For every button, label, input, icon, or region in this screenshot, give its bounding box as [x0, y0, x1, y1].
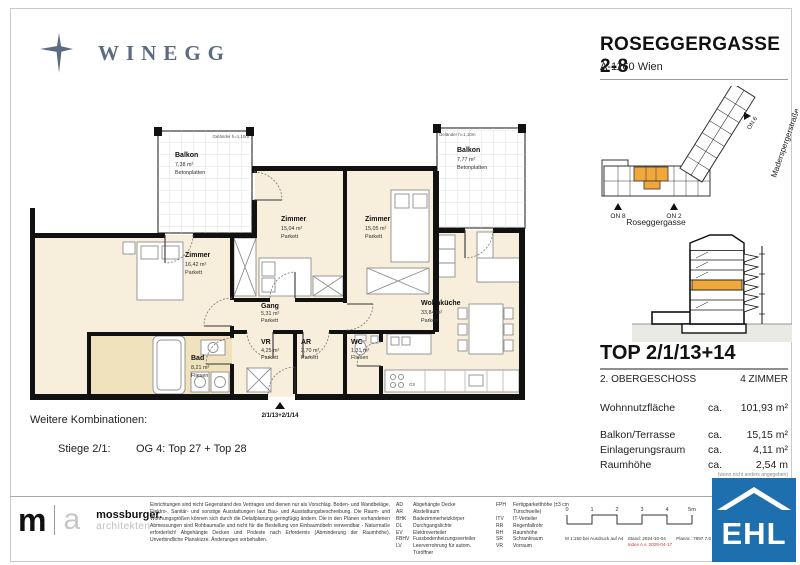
unit-title: TOP 2/1/13+14	[600, 342, 788, 370]
svg-text:4: 4	[665, 507, 668, 513]
room-label-balkon-right: Balkon	[457, 147, 480, 154]
svg-text:2: 2	[615, 507, 618, 513]
plan-meta: M 1:150 bei Ausdruck auf A4 Stand: 2024-…	[565, 536, 711, 548]
address-rule	[600, 79, 788, 80]
unit-room-count: 4 ZIMMER	[740, 374, 788, 385]
architect-logo-a: a	[63, 505, 80, 535]
room-label-zimmer-2: Zimmer	[281, 216, 307, 223]
svg-text:Fliesen: Fliesen	[191, 373, 208, 379]
svg-text:Parkett: Parkett	[185, 270, 203, 276]
site-on6-label: ON 6	[747, 115, 760, 131]
architect-logo-m: m	[18, 504, 46, 536]
svg-text:3: 3	[640, 507, 643, 513]
ehl-wordmark: EHL	[722, 516, 787, 551]
svg-text:Parkett: Parkett	[301, 355, 319, 361]
room-label-wohnkueche: Wohnküche	[421, 300, 461, 307]
svg-text:33,84 m²: 33,84 m²	[421, 310, 442, 316]
svg-text:0: 0	[565, 507, 568, 513]
svg-text:7,38 m²: 7,38 m²	[175, 162, 193, 168]
svg-text:1: 1	[590, 507, 593, 513]
room-label-gang: Gang	[261, 303, 279, 310]
balcony-left	[158, 131, 252, 233]
section-balcony-slabs	[744, 254, 758, 312]
combinations-stiege: Stiege 2/1:	[58, 443, 136, 455]
room-label-bad: Bad	[191, 355, 204, 362]
svg-text:Parkett: Parkett	[261, 355, 279, 361]
metric-row: Wohnnutzfläche ca. 101,93 m²	[600, 402, 788, 414]
room-label-ar: AR	[301, 339, 311, 346]
project-address: A-1160 Wien	[600, 61, 663, 73]
brand-wordmark: WINEGG	[98, 41, 231, 66]
room-label-vr: VR	[261, 339, 271, 346]
svg-text:4,25 m²: 4,25 m²	[261, 348, 279, 354]
svg-text:15,04 m²: 15,04 m²	[281, 226, 302, 232]
svg-text:16,42 m²: 16,42 m²	[185, 262, 206, 268]
scale-bar: 0 1 2 3 4 5m	[565, 503, 715, 538]
metric-row: Balkon/Terrasse ca. 15,15 m²	[600, 429, 788, 441]
metric-row: Einlagerungsraum ca. 4,11 m²	[600, 444, 788, 456]
svg-text:2,70 m²: 2,70 m²	[301, 348, 319, 354]
room-label-wc: WC	[351, 339, 363, 346]
svg-text:Betonplatten: Betonplatten	[457, 165, 487, 171]
scale-note: M 1:150 bei Ausdruck auf A4	[565, 536, 623, 548]
metric-row: Raumhöhe ca. 2,54 m	[600, 459, 788, 471]
entry-marker: 2/1/13+2/1/14	[262, 402, 300, 419]
building-section	[632, 232, 792, 349]
combinations: Weitere Kombinationen: Stiege 2/1: OG 4:…	[30, 414, 247, 455]
entry-label: 2/1/13+2/1/14	[262, 413, 300, 419]
abbreviation-legend-col1: ADAbgehängte Decke ARAbstellraum BHKBade…	[396, 502, 490, 557]
site-plan: ON 8 ON 2 ON 6 Maderspergerstraße Rosegg…	[598, 86, 798, 233]
room-label-zimmer-3: Zimmer	[365, 216, 391, 223]
ehl-logo: EHL	[712, 478, 796, 562]
plan-index: Index A v. 2025-04-17	[628, 542, 672, 548]
site-building-outline	[602, 86, 755, 196]
footer-divider	[10, 496, 790, 497]
plan-sheet: { "header": { "brand": "WINEGG", "title"…	[0, 0, 800, 565]
railing-note-left: Geländer h=1,10m	[213, 134, 250, 139]
combinations-heading: Weitere Kombinationen:	[30, 414, 247, 426]
site-street-maderspergerstrasse: Maderspergerstraße	[769, 107, 798, 179]
architect-logo: m a mossburger. architekten	[18, 504, 162, 536]
brand-header: WINEGG	[40, 28, 231, 79]
site-on8-label: ON 8	[610, 213, 626, 220]
balcony-right	[437, 128, 525, 228]
room-label-zimmer-1: Zimmer	[185, 252, 211, 259]
svg-text:Parkett: Parkett	[261, 318, 279, 324]
svg-text:5,31 m²: 5,31 m²	[261, 311, 279, 317]
section-highlighted-floor	[692, 280, 742, 290]
svg-text:Betonplatten: Betonplatten	[175, 170, 205, 176]
svg-text:8,21 m²: 8,21 m²	[191, 365, 209, 371]
disclaimer-text: Einrichtungen sind nicht Gegenstand des …	[150, 502, 390, 545]
svg-text:Parkett: Parkett	[281, 234, 299, 240]
svg-text:Parkett: Parkett	[421, 318, 439, 324]
svg-text:7,77 m²: 7,77 m²	[457, 157, 475, 163]
railing-note-right: Geländer h=1,10m	[439, 132, 476, 137]
svg-text:15,05 m²: 15,05 m²	[365, 226, 386, 232]
svg-text:5m: 5m	[688, 507, 696, 513]
plan-number: Plannr.: 7897.7.6	[676, 536, 711, 548]
room-label-balkon-left: Balkon	[175, 152, 198, 159]
site-street-roseggergasse: Roseggergasse	[626, 217, 686, 227]
unit-info: TOP 2/1/13+14 2. OBERGESCHOSS 4 ZIMMER W…	[600, 342, 788, 478]
architect-logo-divider	[54, 505, 55, 535]
unit-floor: 2. OBERGESCHOSS	[600, 374, 696, 385]
svg-text:Parkett: Parkett	[365, 234, 383, 240]
winegg-star-icon	[40, 28, 80, 79]
combinations-tops: OG 4: Top 27 + Top 28	[136, 443, 247, 455]
kitchen-gs-label: GS	[409, 382, 415, 387]
svg-text:Fliesen: Fliesen	[351, 355, 368, 361]
floor-plan: Balkon 7,38 m² Betonplatten Geländer h=1…	[25, 118, 535, 425]
svg-text:1,31 m²: 1,31 m²	[351, 348, 369, 354]
